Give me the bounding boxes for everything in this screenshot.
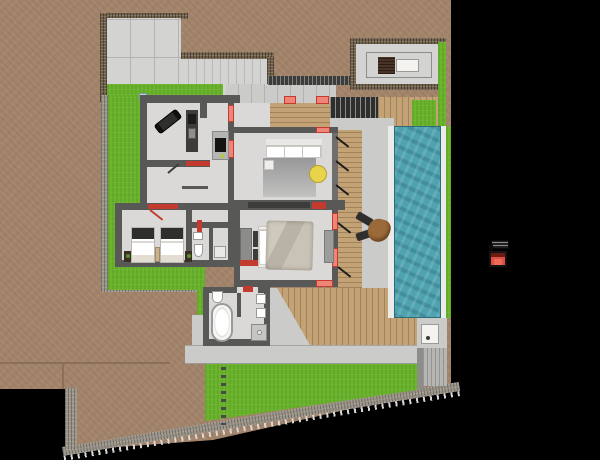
wall-north (140, 95, 240, 103)
door-marker-master-east (332, 213, 338, 230)
driveway-grass-strip (107, 84, 223, 95)
bath-sink (256, 308, 266, 318)
pavilion-skylight (378, 57, 395, 74)
bath-shower (251, 324, 267, 341)
twin-bed (131, 227, 155, 263)
wc-sink (193, 232, 203, 240)
side-table (264, 160, 274, 170)
entry-column (316, 96, 329, 104)
master-duvet (265, 220, 313, 270)
grass-strip-south (108, 267, 205, 290)
terrain-contour-line (62, 362, 64, 389)
boundary-wall-left (65, 388, 77, 450)
wardrobe-builtin (248, 202, 310, 208)
master-closet (240, 228, 252, 262)
swimming-pool (394, 126, 441, 318)
bath-sink (256, 294, 266, 304)
shower-head-icon (257, 330, 262, 335)
plant-icon (126, 254, 130, 258)
bath-toilet (212, 291, 223, 303)
swatch-red-box[interactable] (489, 251, 507, 267)
wall-shower-divider (209, 228, 213, 267)
wall-hall-stub (182, 186, 208, 189)
garden-path (185, 345, 417, 364)
swatch-label-bar[interactable] (491, 240, 509, 249)
decor-bowl (220, 154, 224, 158)
pavilion-grass-strip (438, 42, 446, 128)
site-plan-canvas (0, 0, 600, 460)
kitchen-appliance (188, 114, 196, 124)
wall-bath-north (258, 287, 270, 293)
master-dresser (324, 230, 334, 263)
door-marker-corridor (228, 105, 234, 122)
louver-canopy (268, 76, 357, 85)
door-marker-twin (148, 204, 178, 209)
garden-wall-west (101, 95, 108, 292)
coffee-table-round (309, 165, 327, 183)
retaining-wall-face (423, 345, 447, 386)
driveway-stone-border (178, 52, 274, 59)
driveway-stone-border (100, 13, 107, 101)
bathtub (211, 303, 233, 342)
wall-twin-west (115, 203, 122, 267)
pavilion-rooflight (396, 59, 419, 72)
wall-bath-west (203, 287, 209, 345)
door-marker-gym (186, 161, 210, 166)
floor-entry-hall (234, 103, 270, 127)
nightstand (185, 251, 192, 262)
door-marker-master-west (240, 260, 258, 266)
sofa-seat (266, 146, 322, 158)
wall-bath-divider (237, 293, 241, 317)
door-marker-master-south (316, 280, 333, 287)
door-marker-bath (243, 286, 253, 292)
nightstand (124, 251, 131, 262)
grass-strip-east (446, 126, 451, 318)
entry-column (284, 96, 296, 104)
nightstand-shared (155, 247, 160, 262)
wc-toilet (194, 244, 203, 257)
shower-tray (214, 246, 226, 258)
deck-grass-square (412, 100, 436, 126)
terrain-contour-line (0, 362, 170, 364)
entry-terrace-deck (270, 103, 336, 128)
wall-living-glazing (332, 133, 338, 207)
twin-bed (160, 227, 184, 263)
sofa-back (266, 139, 322, 146)
wall-west (140, 95, 147, 210)
door-marker-master (312, 202, 326, 209)
swatch-red-inner (494, 259, 502, 265)
outdoor-shower (421, 324, 439, 344)
shower-drain-icon (426, 336, 430, 340)
grass-strip-west (108, 95, 143, 203)
plant-icon (187, 254, 191, 258)
wall-wc-north (186, 222, 228, 228)
door-marker-living-north (316, 127, 330, 133)
cooktop (215, 138, 226, 152)
kitchen-sink (188, 128, 196, 139)
exterior-stairs (330, 97, 378, 118)
stepping-stones (221, 367, 226, 425)
wall-kitchen-stub (200, 103, 207, 118)
